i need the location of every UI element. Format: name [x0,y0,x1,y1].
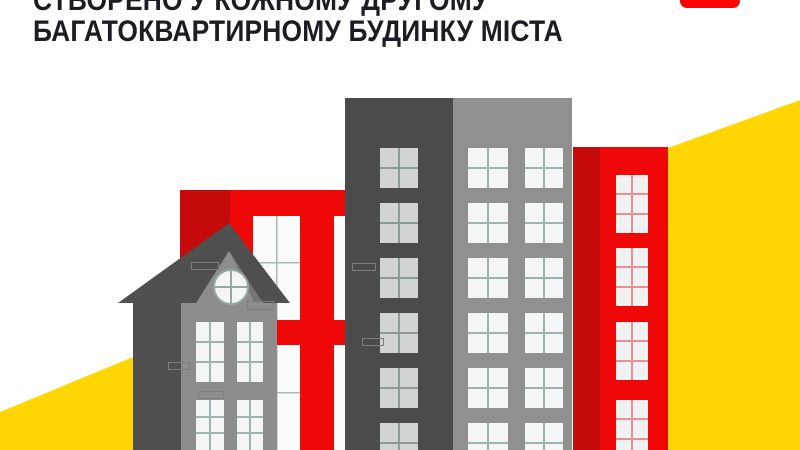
headline-line-2: БАГАТОКВАРТИРНОМУ БУДИНКУ МІСТА [33,21,563,43]
brick-detail [198,391,224,399]
window [237,400,263,450]
brick-detail [168,362,190,370]
window [237,322,263,382]
window [196,322,224,382]
red-logo-icon [680,0,740,8]
house-roof-shapes [0,0,800,450]
window [196,400,224,450]
round-attic-window [213,269,249,305]
headline-line-1: СТВОРЕНО У КОЖНОМУ ДРУГОМУ [33,0,489,12]
brick-detail [247,301,274,310]
brick-detail [191,262,219,270]
poster: СТВОРЕНО У КОЖНОМУ ДРУГОМУ БАГАТОКВАРТИР… [0,0,800,450]
